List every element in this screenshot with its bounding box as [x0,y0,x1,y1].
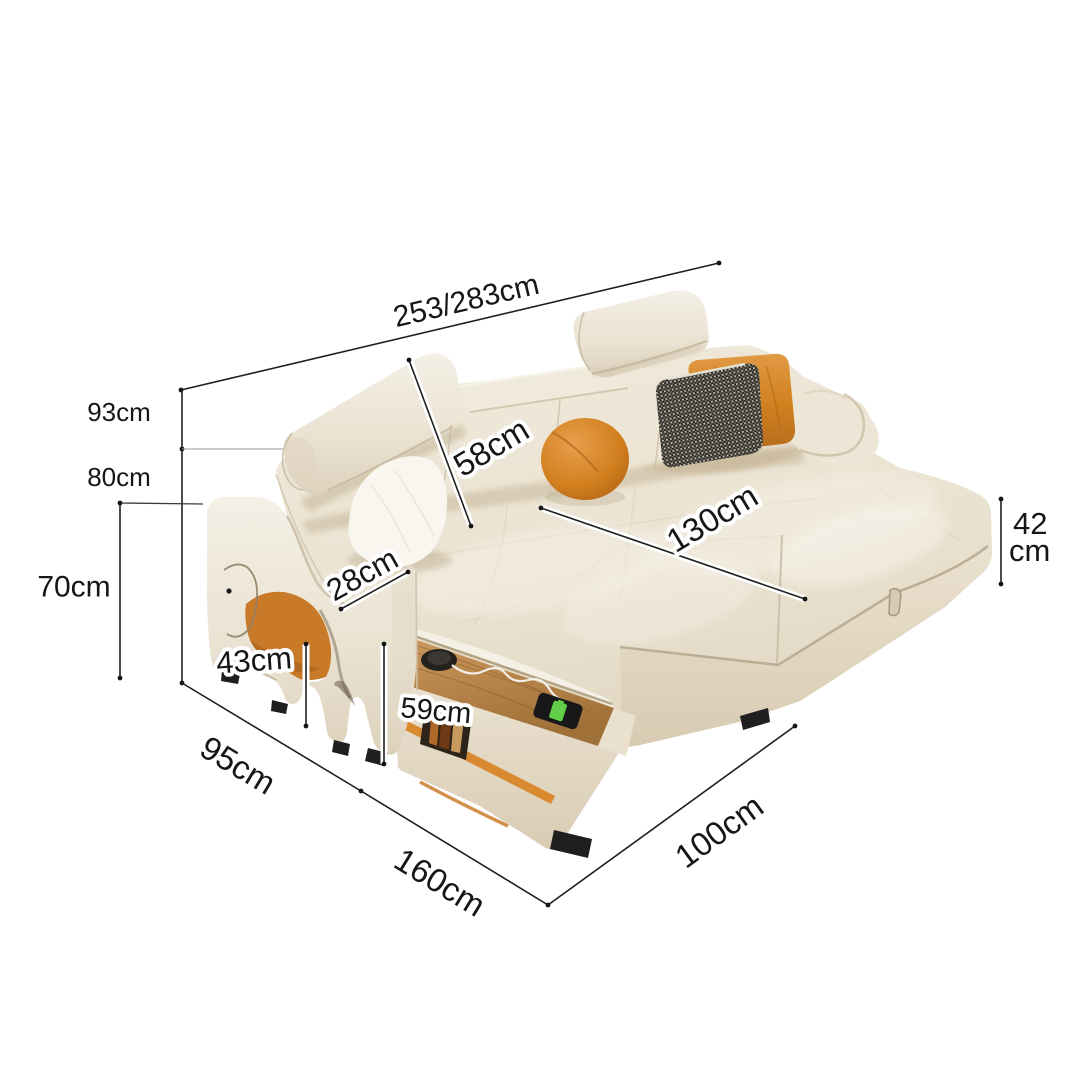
svg-text:59cm: 59cm [399,692,472,730]
svg-text:80cm: 80cm [87,462,151,492]
svg-text:70cm: 70cm [37,571,110,604]
svg-text:cm: cm [1009,533,1050,568]
svg-text:43cm: 43cm [215,640,293,680]
svg-text:93cm: 93cm [87,397,151,427]
